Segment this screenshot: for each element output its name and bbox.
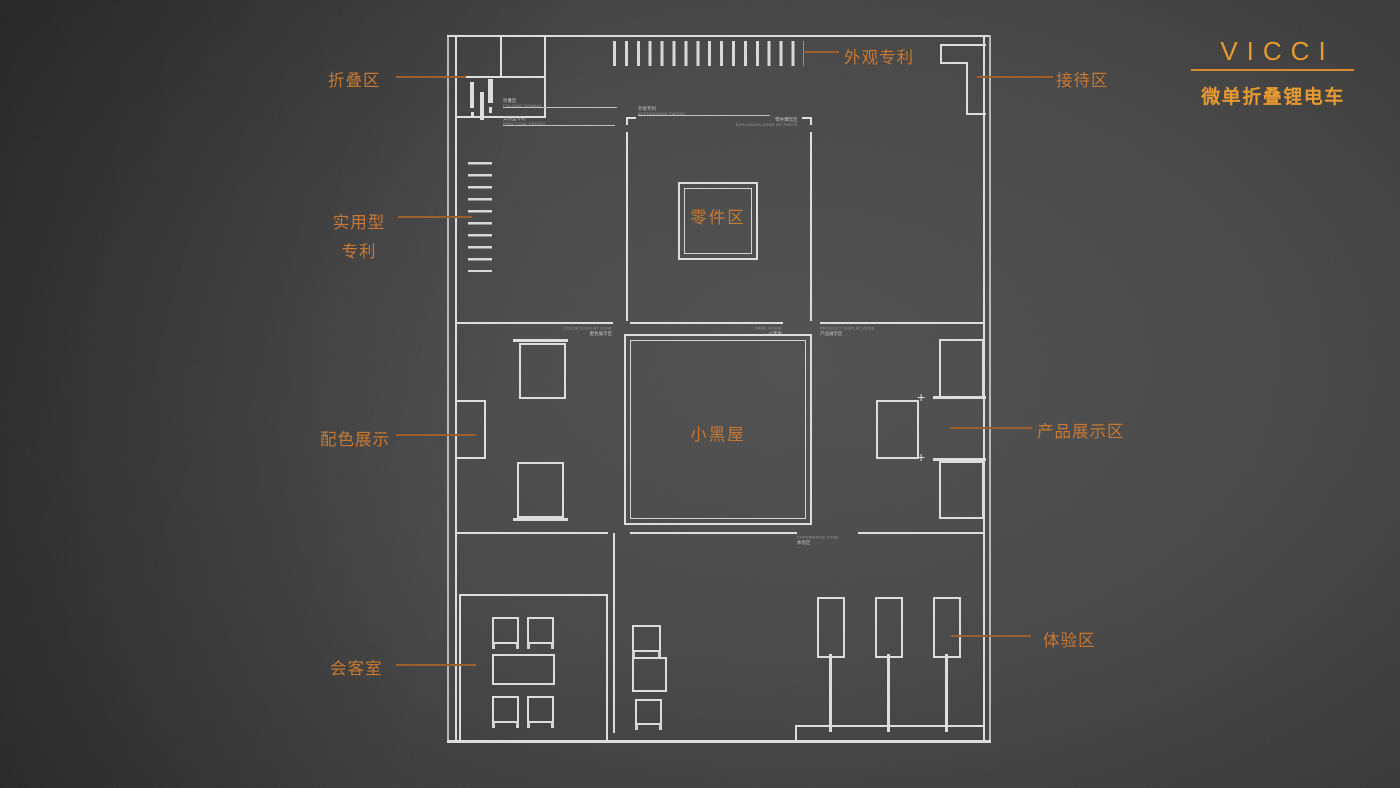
plan-annotation-product: PRODUCT DISPLAY ZONE 产品展示区 <box>820 326 875 337</box>
callout-meeting-room: 会客室 <box>330 655 383 679</box>
plan-annotation-parts-explosion: 零件爆炸区 EXPLOSION ZONE OF PARTS <box>736 117 798 128</box>
wall-right-outer <box>989 35 991 743</box>
chair <box>527 696 554 723</box>
divider-wall-2 <box>455 532 608 534</box>
reception-desk <box>966 62 968 115</box>
test-ride-pole <box>887 654 890 732</box>
callout-experience-zone: 体验区 <box>1043 627 1096 651</box>
experience-base-track <box>795 725 985 742</box>
divider-wall-2 <box>858 532 984 534</box>
meeting-table <box>492 654 555 685</box>
meeting-room-wall <box>459 594 461 740</box>
reception-desk <box>966 113 986 115</box>
wall-left-outer <box>447 35 449 743</box>
annotation-rule <box>638 115 770 116</box>
presentation-slide: VICCI 微单折叠锂电车 折叠区 FOLDING DOMAIN 实用型专利 P… <box>0 0 1400 788</box>
bike-tick <box>471 112 474 118</box>
callout-folding-zone: 折叠区 <box>328 67 381 91</box>
leader-appearance <box>805 51 839 53</box>
leader-experience <box>951 635 1031 637</box>
display-stand-bar <box>513 518 568 521</box>
bike-tick <box>489 107 492 113</box>
chair <box>527 617 554 644</box>
utility-patent-line1: 实用型 <box>328 209 390 238</box>
room-topleft-b <box>500 35 546 78</box>
leader-meeting-room <box>396 664 476 666</box>
callout-parts-zone: 零件区 <box>678 204 758 228</box>
chair <box>492 617 519 644</box>
bottom-partition-wall <box>613 533 615 733</box>
annotation-rule <box>503 107 617 108</box>
divider-wall-1 <box>820 322 984 324</box>
callout-reception-zone: 接待区 <box>1056 67 1109 91</box>
room-topleft-a <box>455 35 502 78</box>
center-room-wall-left <box>626 117 628 125</box>
display-stand-bar <box>513 339 568 342</box>
display-stand <box>519 343 566 399</box>
chair <box>492 696 519 723</box>
divider-wall-2 <box>630 532 797 534</box>
test-ride-stand <box>817 597 845 658</box>
divider-wall-1 <box>630 322 783 324</box>
meeting-room-wall <box>606 594 608 740</box>
chair <box>635 699 662 725</box>
folded-bike-symbol <box>488 79 493 103</box>
appearance-patent-display-ticks <box>613 41 804 66</box>
test-ride-pole <box>829 654 832 732</box>
side-table <box>632 657 667 692</box>
test-ride-stand <box>875 597 903 658</box>
callout-appearance-patent: 外观专利 <box>844 44 914 68</box>
reception-desk <box>940 44 942 64</box>
folded-bike-symbol <box>470 82 474 108</box>
reception-desk <box>940 62 968 64</box>
leader-color-display <box>396 434 476 436</box>
callout-color-display: 配色展示 <box>320 426 390 450</box>
test-ride-stand <box>933 597 961 658</box>
leader-folding <box>396 76 466 78</box>
display-stand <box>517 462 564 518</box>
brand-logo: VICCI <box>1188 36 1358 67</box>
leader-reception <box>977 76 1053 78</box>
folding-room-right-wall <box>544 77 546 118</box>
plus-marker: + <box>917 450 925 464</box>
center-room-wall-right <box>810 132 812 321</box>
brand-divider-line <box>1191 69 1354 71</box>
folded-bike-symbol <box>480 92 484 120</box>
display-stand <box>939 339 984 398</box>
callout-utility-patent: 实用型 专利 <box>328 209 390 267</box>
center-room-wall-left <box>626 132 628 321</box>
center-room-wall-right <box>810 117 812 125</box>
callout-product-display: 产品展示区 <box>1037 418 1125 442</box>
color-display-wall-unit <box>455 400 486 459</box>
callout-dark-room: 小黑屋 <box>624 421 812 445</box>
display-stand <box>939 461 984 519</box>
test-ride-pole <box>945 654 948 732</box>
divider-wall-1 <box>455 322 613 324</box>
wall-left-inner <box>455 35 457 743</box>
leader-utility <box>398 216 472 218</box>
plan-annotation-color: COLOR DISPLAY ZONE 配色展示区 <box>563 326 612 337</box>
meeting-room-wall <box>459 594 608 596</box>
reception-desk <box>940 44 986 46</box>
annotation-rule <box>503 125 615 126</box>
plan-annotation-experience: EXPERIENCE ZONE 体验区 <box>797 535 839 546</box>
product-name: 微单折叠锂电车 <box>1188 82 1358 109</box>
leader-product-display <box>950 427 1032 429</box>
chair <box>632 625 661 652</box>
utility-patent-line2: 专利 <box>328 238 390 267</box>
display-stand <box>876 400 919 459</box>
